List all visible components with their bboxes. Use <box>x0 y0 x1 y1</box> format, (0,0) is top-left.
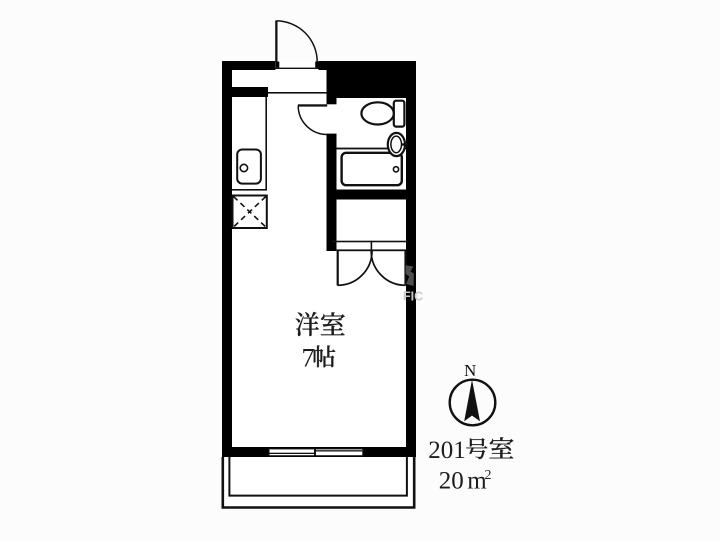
svg-text:7: 7 <box>302 343 315 372</box>
svg-text:2: 2 <box>485 468 492 483</box>
svg-text:20: 20 <box>439 467 464 494</box>
svg-text:FIC: FIC <box>403 290 423 304</box>
svg-text:N: N <box>464 361 476 380</box>
svg-text:201: 201 <box>428 437 466 464</box>
